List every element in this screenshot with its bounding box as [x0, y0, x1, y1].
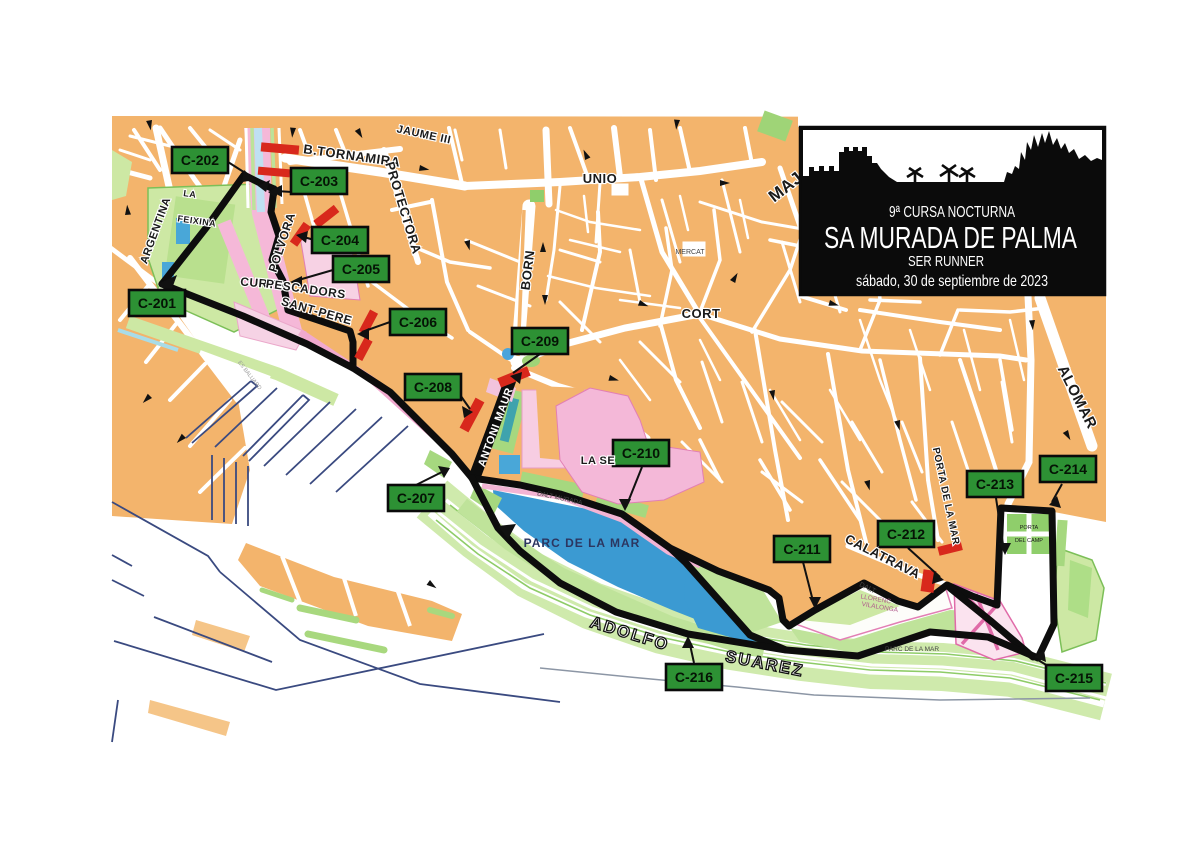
svg-text:C-211: C-211 [783, 541, 821, 557]
svg-text:C-203: C-203 [300, 173, 338, 189]
svg-text:C-206: C-206 [399, 314, 437, 330]
svg-text:PARC DE LA MAR: PARC DE LA MAR [885, 646, 939, 653]
svg-text:C-205: C-205 [342, 261, 380, 277]
svg-text:UNIO: UNIO [583, 171, 618, 186]
svg-text:C-214: C-214 [1049, 461, 1087, 477]
svg-text:PARC DE LA MAR: PARC DE LA MAR [524, 536, 641, 550]
svg-text:SA MURADA DE PALMA: SA MURADA DE PALMA [824, 220, 1077, 255]
svg-text:sábado, 30 de septiembre de 2: sábado, 30 de septiembre de 2023 [856, 273, 1048, 290]
svg-text:C-209: C-209 [521, 333, 559, 349]
svg-text:C-207: C-207 [397, 490, 435, 506]
svg-text:C-202: C-202 [181, 152, 219, 168]
svg-text:PORTA: PORTA [1020, 525, 1039, 531]
svg-text:MERCAT: MERCAT [675, 249, 705, 256]
svg-text:CORT: CORT [682, 306, 721, 321]
svg-text:C-216: C-216 [675, 669, 713, 685]
svg-text:C-210: C-210 [622, 445, 660, 461]
svg-text:LA SE: LA SE [581, 455, 616, 467]
svg-text:C-213: C-213 [976, 476, 1014, 492]
svg-text:C-215: C-215 [1055, 670, 1093, 686]
svg-text:DEL CAMP: DEL CAMP [1015, 538, 1043, 544]
svg-text:C-212: C-212 [887, 526, 925, 542]
svg-text:C-204: C-204 [321, 232, 359, 248]
svg-text:LA: LA [183, 188, 197, 200]
svg-text:C-208: C-208 [414, 379, 452, 395]
svg-text:SER RUNNER: SER RUNNER [908, 253, 984, 270]
svg-text:9ª CURSA NOCTURNA: 9ª CURSA NOCTURNA [889, 204, 1015, 221]
svg-text:C-201: C-201 [138, 295, 176, 311]
